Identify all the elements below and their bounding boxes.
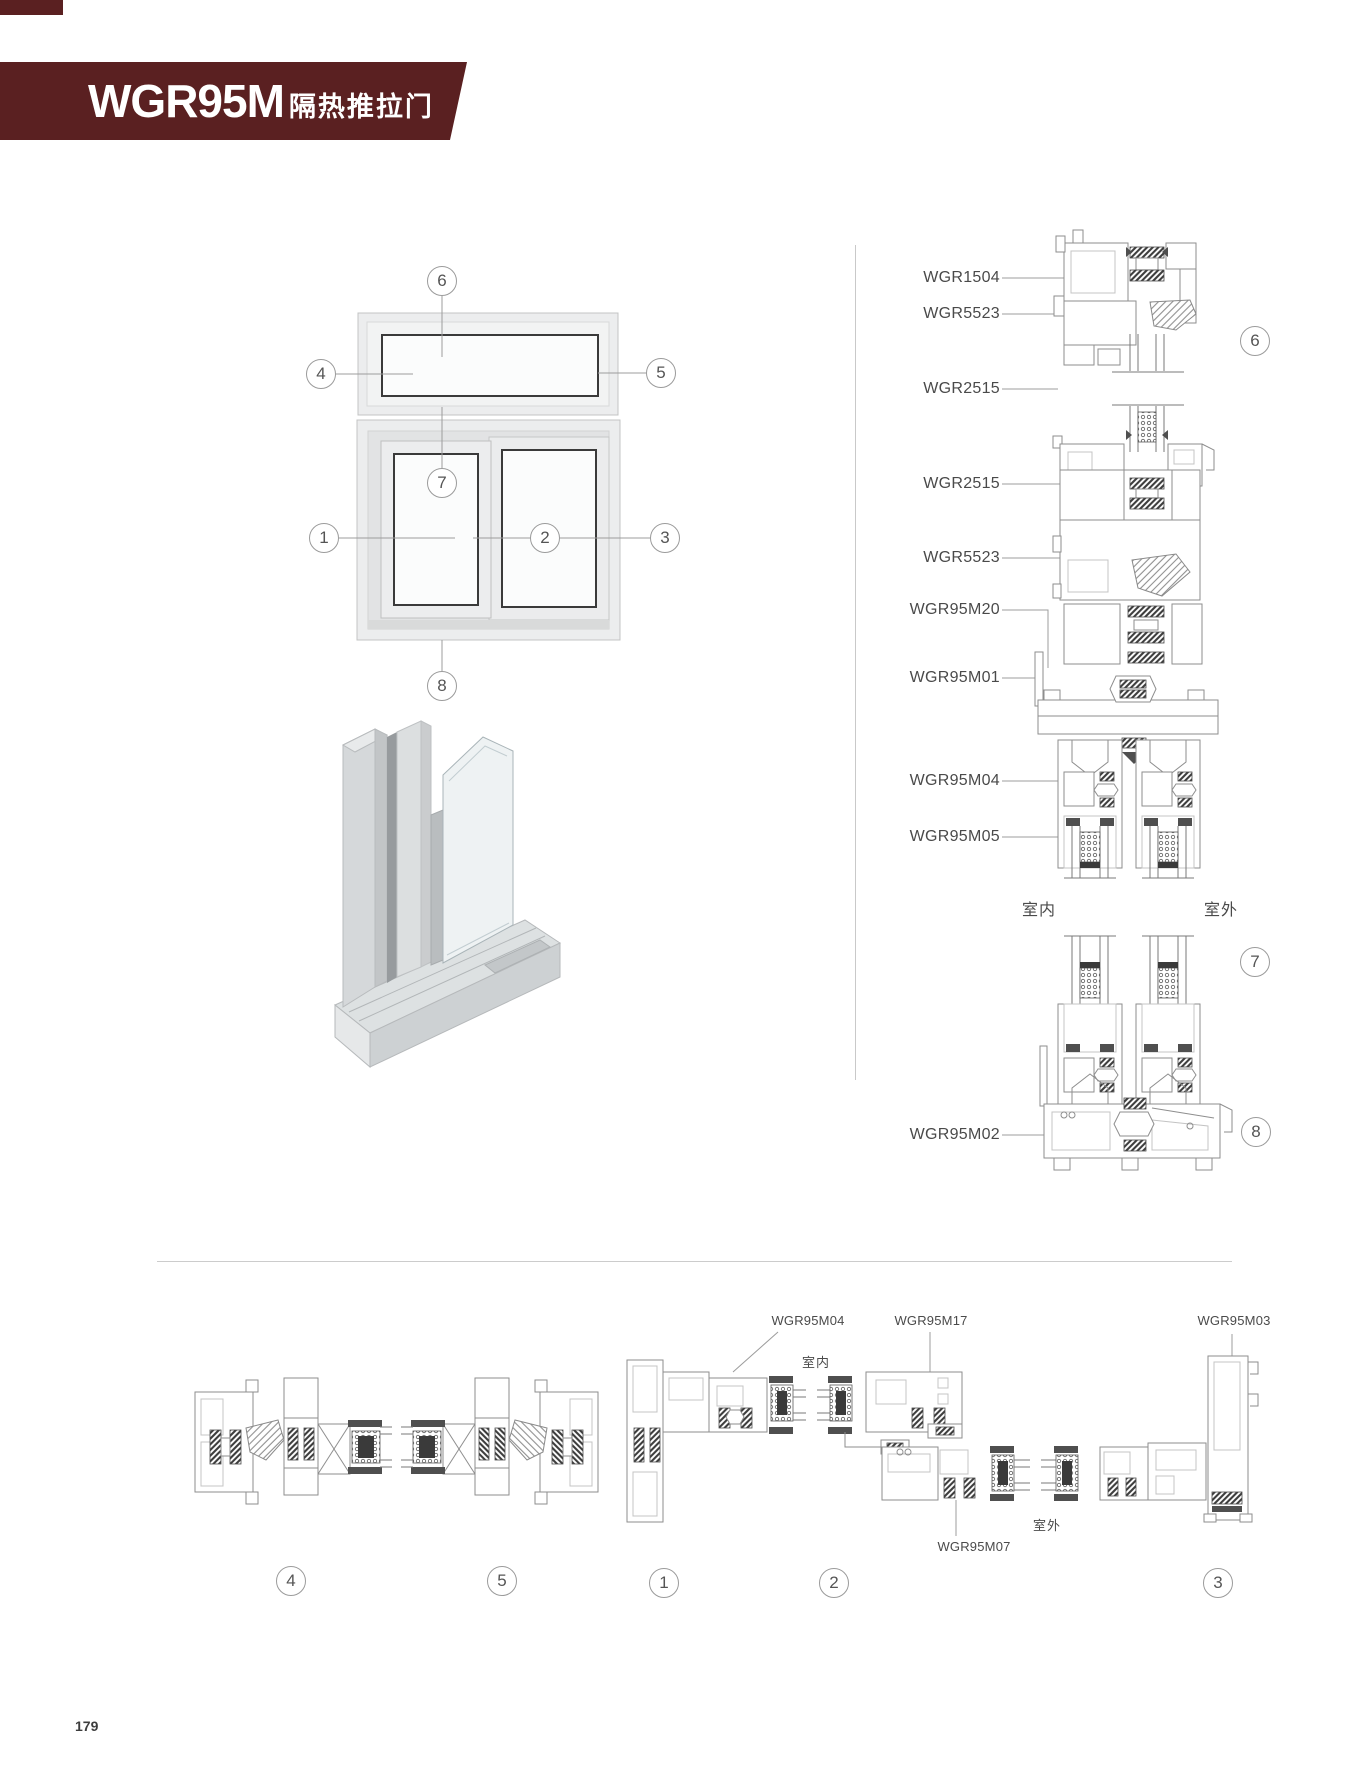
- section-callout-2: 2: [819, 1568, 849, 1598]
- part-label-wgr95m04: WGR95M04: [850, 772, 1000, 790]
- part-label-wgr2515: WGR2515: [850, 380, 1000, 398]
- indoor-label-bottom: 室内: [802, 1352, 830, 1371]
- part-label-wgr5523-2: WGR5523: [850, 549, 1000, 567]
- callout-1: 1: [309, 523, 339, 553]
- technical-drawing-layer: [0, 0, 1359, 1771]
- part-label-wgr95m04-bottom: WGR95M04: [743, 1313, 873, 1328]
- callout-3: 3: [650, 523, 680, 553]
- callout-8: 8: [427, 671, 457, 701]
- page-number: 179: [75, 1718, 98, 1734]
- callout-6: 6: [427, 266, 457, 296]
- part-label-wgr95m20: WGR95M20: [850, 601, 1000, 619]
- section-callout-1: 1: [649, 1568, 679, 1598]
- part-label-wgr95m01: WGR95M01: [850, 669, 1000, 687]
- section-callout-6: 6: [1240, 326, 1270, 356]
- horizontal-sections-drawing: [195, 1332, 1258, 1536]
- section-callout-5: 5: [487, 1566, 517, 1596]
- section-callout-8: 8: [1241, 1117, 1271, 1147]
- callout-4: 4: [306, 359, 336, 389]
- part-label-wgr1504: WGR1504: [850, 269, 1000, 287]
- part-label-wgr95m17: WGR95M17: [866, 1313, 996, 1328]
- indoor-label: 室内: [1022, 896, 1056, 920]
- part-label-wgr5523: WGR5523: [850, 305, 1000, 323]
- catalog-page: WGR95M 隔热推拉门: [0, 0, 1359, 1771]
- callout-7: 7: [427, 468, 457, 498]
- callout-2: 2: [530, 523, 560, 553]
- vertical-sections-drawing: [1002, 230, 1232, 1170]
- part-label-wgr95m03: WGR95M03: [1169, 1313, 1299, 1328]
- outdoor-label-bottom: 室外: [1033, 1515, 1061, 1534]
- section-callout-3: 3: [1203, 1568, 1233, 1598]
- elevation-drawing: [336, 296, 650, 671]
- part-label-wgr95m05: WGR95M05: [850, 828, 1000, 846]
- callout-5: 5: [646, 358, 676, 388]
- vertical-divider: [855, 245, 856, 1080]
- section-callout-4: 4: [276, 1566, 306, 1596]
- horizontal-divider: [157, 1261, 1232, 1262]
- iso-render-drawing: [335, 721, 560, 1067]
- outdoor-label: 室外: [1204, 896, 1238, 920]
- part-label-wgr95m07: WGR95M07: [909, 1539, 1039, 1554]
- part-label-wgr2515-2: WGR2515: [850, 475, 1000, 493]
- part-label-wgr95m02: WGR95M02: [850, 1126, 1000, 1144]
- section-callout-7: 7: [1240, 947, 1270, 977]
